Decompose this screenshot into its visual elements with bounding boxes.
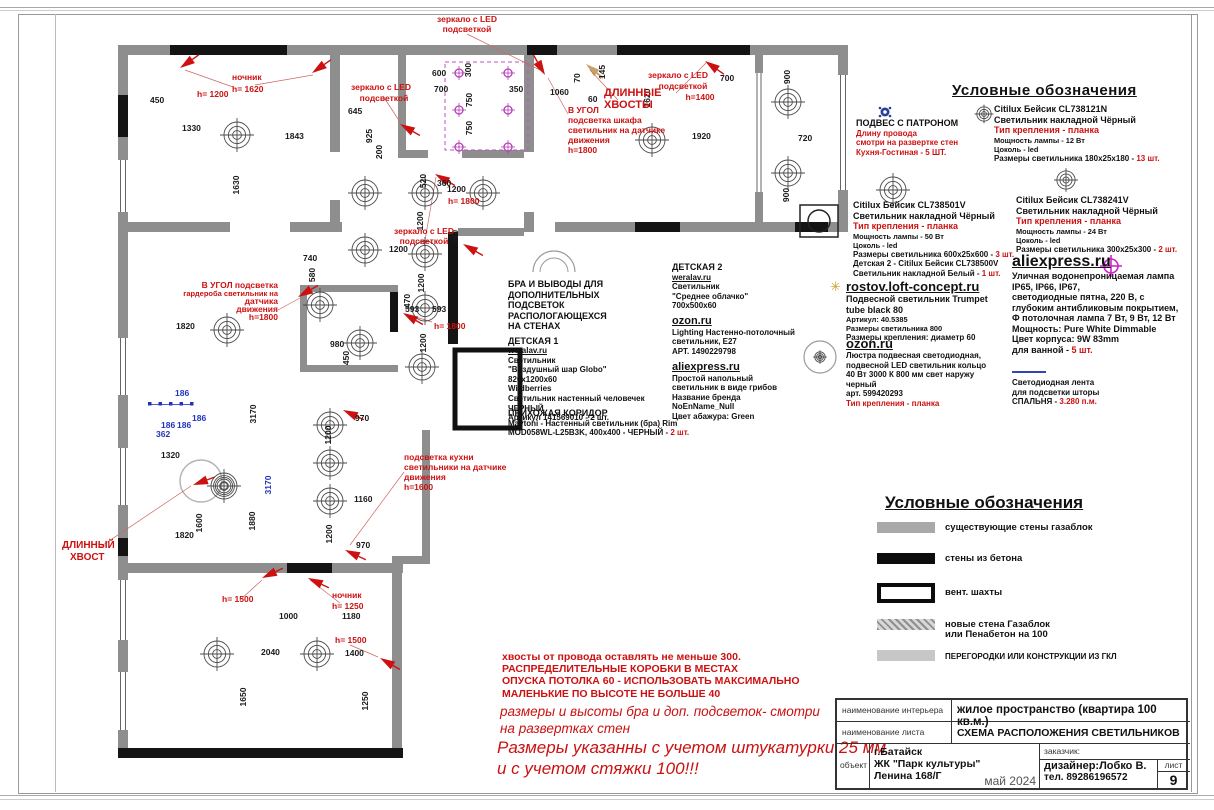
text-line: Длину провода <box>856 129 958 139</box>
text-line: Простой напольный <box>672 374 795 384</box>
svg-text:350: 350 <box>509 84 523 94</box>
wall-legend-row: новые стена Газаблок или Пенабетон на 10… <box>877 619 1177 641</box>
svg-text:зеркало с LED: зеркало с LED <box>648 70 708 80</box>
podves-entry: ПОДВЕС С ПАТРОНОМ Длину проводасмотри на… <box>856 118 958 157</box>
text-line: Цоколь - led <box>853 241 1014 250</box>
text-line: aliexpress.ru <box>672 361 795 374</box>
svg-text:ХВОСТ: ХВОСТ <box>70 552 105 563</box>
wall-legend-label: ПЕРЕГОРОДКИ ИЛИ КОНСТРУКЦИИ ИЗ ГКЛ <box>945 652 1117 661</box>
text-line: Lighting Настенно-потолочный <box>672 328 795 338</box>
text-line: weralav.ru <box>508 346 645 356</box>
svg-text:2040: 2040 <box>261 647 280 657</box>
designer-phone: тел. 89286196572 <box>1044 772 1157 783</box>
svg-text:645: 645 <box>348 106 362 116</box>
text-line: хвосты от провода оставлять не меньше 30… <box>502 651 800 663</box>
text-line: СПАЛЬНЯ - 3.280 п.м. <box>1012 397 1099 407</box>
text-line: ozon.ru <box>672 315 795 328</box>
text-line: Мощность: Pure White Dimmable <box>1012 324 1178 335</box>
swatch-new-gasblock <box>877 619 935 630</box>
text-line: глубоким антибликовым покрытием, <box>1012 303 1178 314</box>
text-line: Maytoni - Настенный светильник (бра) Rim <box>508 419 689 429</box>
svg-text:186: 186 <box>192 413 206 423</box>
washing-machine <box>800 205 838 237</box>
svg-text:1200: 1200 <box>418 333 428 352</box>
svg-text:1650: 1650 <box>238 687 248 706</box>
rostov-title: rostov.loft-concept.ru <box>846 279 988 294</box>
text-line: для подсветки шторы <box>1012 388 1099 398</box>
title-block-label: наименование интерьера <box>837 700 952 722</box>
text-line: Мощность лампы - 24 Вт <box>1016 227 1177 236</box>
text-line: Тип крепления - планка <box>853 221 1014 232</box>
swatch-existing-gasblock <box>877 522 935 533</box>
interior-name: жилое пространство (квартира 100 кв.м.) <box>952 700 1190 722</box>
text-line: IP65, IP66, IP67, <box>1012 282 1178 293</box>
pendant-socket-icon <box>879 107 892 118</box>
text-line: Подвесной светильник Trumpet <box>846 294 988 305</box>
svg-text:h=1800: h=1800 <box>568 145 597 155</box>
svg-text:h= 1200: h= 1200 <box>197 89 229 99</box>
svg-text:186: 186 <box>175 388 189 398</box>
text-line: Размеры светильника 800 <box>846 324 988 333</box>
text-line: 40 Вт 3000 К 800 мм свет наружу <box>846 370 986 380</box>
aliexpress-title: aliexpress.ru <box>1012 253 1178 271</box>
svg-text:200: 200 <box>374 145 384 159</box>
svg-text:h= 1500: h= 1500 <box>335 635 367 645</box>
wall-legend-row: существующие стены газаблок <box>877 522 1177 536</box>
svg-text:зеркало с LED: зеркало с LED <box>394 226 454 236</box>
svg-text:h=1600: h=1600 <box>404 482 433 492</box>
sheet-name: СХЕМА РАСПОЛОЖЕНИЯ СВЕТИЛЬНИКОВ <box>952 722 1190 744</box>
svg-text:362: 362 <box>156 429 170 439</box>
fixture-legend-title: Условные обозначения <box>952 82 1137 99</box>
svg-text:1880: 1880 <box>247 511 257 530</box>
svg-text:В УГОЛ: В УГОЛ <box>568 105 599 115</box>
aliexpress-block: aliexpress.ru Уличная водонепроницаемая … <box>1012 253 1178 355</box>
text-line: Мощность лампы - 50 Вт <box>853 232 1014 241</box>
text-line: Артикул: 40.5385 <box>846 315 988 324</box>
svg-text:720: 720 <box>798 133 812 143</box>
text-line: светодиодные пятна, 220 В, с <box>1012 292 1178 303</box>
text-line: Wildberries <box>508 384 645 394</box>
title-block-label: наименование листа <box>837 722 952 744</box>
svg-text:1400: 1400 <box>345 648 364 658</box>
handwritten-note-2: Размеры указанны с учетом штукатурки 25 … <box>497 737 886 779</box>
title-block: наименование интерьера жилое пространств… <box>835 698 1188 790</box>
svg-text:1250: 1250 <box>360 691 370 710</box>
wall-legend-row: вент. шахты <box>877 583 1177 605</box>
ozon-title: ozon.ru <box>846 336 986 351</box>
text-line: смотри на развертке стен <box>856 138 958 148</box>
svg-text:ночник: ночник <box>232 72 262 82</box>
object-city: г.Батайск <box>874 746 1039 758</box>
text-line: ДЕТСКАЯ 2 <box>672 262 795 273</box>
text-line: Тип крепления - планка <box>994 125 1160 136</box>
client-label: заказчик: <box>1040 744 1190 760</box>
svg-text:h=1800: h=1800 <box>249 312 278 322</box>
text-line: НА СТЕНАХ <box>508 321 645 332</box>
svg-text:1200: 1200 <box>324 524 334 543</box>
sheet-number: 9 <box>1157 772 1190 788</box>
text-line: ОПУСКА ПОТОЛКА 60 - ИСПОЛЬЗОВАТЬ МАКСИМА… <box>502 675 800 687</box>
date: май 2024 <box>984 775 1036 787</box>
text-line: Светильник накладной Чёрный <box>1016 206 1177 217</box>
text-line: размеры и высоты бра и доп. подсветок- с… <box>500 703 820 720</box>
svg-text:186: 186 <box>177 420 191 430</box>
text-line: на развертках стен <box>500 720 820 737</box>
svg-text:1630: 1630 <box>231 175 241 194</box>
svg-text:подсветкой: подсветкой <box>400 236 449 246</box>
text-line: Тип крепления - планка <box>1016 216 1177 227</box>
text-line: Кухня-Гостиная - 5 ШТ. <box>856 148 958 158</box>
svg-text:3170: 3170 <box>263 475 273 494</box>
prihozhaya-block: ПРИХОЖАЯ КОРИДОРMaytoni - Настенный свет… <box>508 408 689 438</box>
svg-text:h= 1800: h= 1800 <box>434 321 466 331</box>
svg-text:1200: 1200 <box>416 273 426 292</box>
svg-text:1920: 1920 <box>692 131 711 141</box>
svg-text:750: 750 <box>464 93 474 107</box>
object-complex: ЖК "Парк культуры" <box>874 758 1039 770</box>
svg-text:60: 60 <box>588 94 598 104</box>
swatch-concrete <box>877 553 935 564</box>
svg-text:1320: 1320 <box>161 450 180 460</box>
svg-text:ХВОСТЫ: ХВОСТЫ <box>604 99 653 111</box>
svg-text:450: 450 <box>341 351 351 365</box>
rostov-block: rostov.loft-concept.ru Подвесной светиль… <box>846 279 988 343</box>
spot-lights <box>452 66 515 154</box>
text-line: и с учетом стяжки 100!!! <box>497 758 886 779</box>
text-line: NoEnName_Null <box>672 402 795 412</box>
wall-legend-label: существующие стены газаблок <box>945 522 1093 533</box>
junction-dots <box>148 402 194 406</box>
svg-text:1330: 1330 <box>182 123 201 133</box>
svg-text:h= 1800: h= 1800 <box>448 196 480 206</box>
svg-text:h= 1620: h= 1620 <box>232 84 264 94</box>
svg-text:1820: 1820 <box>175 530 194 540</box>
svg-text:зеркало с LED: зеркало с LED <box>437 14 497 24</box>
text-line: Цвет корпуса: 9W 83mm <box>1012 334 1178 345</box>
svg-text:700: 700 <box>720 73 734 83</box>
svg-text:450: 450 <box>150 95 164 105</box>
text-line: Мощность лампы - 12 Вт <box>994 136 1160 145</box>
object-address: г.Батайск ЖК "Парк культуры" Ленина 168/… <box>870 744 1040 788</box>
svg-text:h=1400: h=1400 <box>685 92 714 102</box>
text-line: Светильник накладной Чёрный <box>994 115 1160 126</box>
cl738501v-entry: Citilux Бейсик CL738501VСветильник накла… <box>853 200 1014 278</box>
wall-legend-label: стены из бетона <box>945 553 1022 564</box>
text-line: Цоколь - led <box>994 145 1160 154</box>
text-line: Citilux Бейсик CL738501V <box>853 200 1014 211</box>
svg-text:593: 593 <box>432 304 446 314</box>
svg-text:593: 593 <box>405 304 419 314</box>
svg-text:925: 925 <box>364 129 374 143</box>
text-line: РАСПОЛОГАЮЩЕХСЯ <box>508 311 645 322</box>
svg-text:1060: 1060 <box>550 87 569 97</box>
svg-text:движения: движения <box>404 472 446 482</box>
cl738121n-entry: Citilux Бейсик CL738121NСветильник накла… <box>994 104 1160 163</box>
text-line: ПРИХОЖАЯ КОРИДОР <box>508 408 689 419</box>
swatch-vent-shaft <box>877 583 935 603</box>
svg-text:970: 970 <box>355 413 369 423</box>
text-line: Цвет абажура: Green <box>672 412 795 422</box>
svg-text:750: 750 <box>464 121 474 135</box>
text-line: арт. 599420293 <box>846 389 986 399</box>
svg-text:740: 740 <box>303 253 317 263</box>
svg-text:700: 700 <box>434 84 448 94</box>
text-line: Уличная водонепроницаемая лампа <box>1012 271 1178 282</box>
text-line: Citilux Бейсик CL738121N <box>994 104 1160 115</box>
text-line: ДОПОЛНИТЕЛЬНЫХ <box>508 290 645 301</box>
swatch-gkl-partition <box>877 650 935 661</box>
text-line: weralav.ru <box>672 273 795 283</box>
svg-text:подсветкой: подсветкой <box>360 93 409 103</box>
text-line: Светильник <box>508 356 645 366</box>
text-line: Размеры светильника 180x25x180 - 13 шт. <box>994 154 1160 164</box>
svg-text:подсветкой: подсветкой <box>443 24 492 34</box>
pendant-gold-icon: ✳ <box>830 279 841 294</box>
text-line: Светильник настенный человечек <box>508 394 645 404</box>
text-line: РАСПРЕДЕЛИТЕЛЬНЫЕ КОРОБКИ В МЕСТАХ <box>502 663 800 675</box>
svg-text:520: 520 <box>418 174 428 188</box>
svg-text:1000: 1000 <box>279 611 298 621</box>
svg-text:ДЛИННЫЙ: ДЛИННЫЙ <box>62 538 115 551</box>
svg-text:светильник на датчике: светильник на датчике <box>568 125 665 135</box>
sconce-arc-icon <box>533 251 575 272</box>
wall-legend-label: или Пенабетон на 100 <box>945 629 1048 640</box>
led-strip-icon <box>1012 371 1046 373</box>
svg-text:1200: 1200 <box>323 425 333 444</box>
text-line: черный <box>846 380 986 390</box>
handwritten-note-1: размеры и высоты бра и доп. подсветок- с… <box>500 703 820 737</box>
svg-text:h= 1250: h= 1250 <box>332 601 364 611</box>
drawing-sheet: ✳ 450133018431630645925200600300700 <box>0 0 1214 810</box>
svg-text:подсветка шкафа: подсветка шкафа <box>568 115 642 125</box>
cl738241v-entry: Citilux Бейсик CL738241VСветильник накла… <box>1016 195 1177 254</box>
svg-text:70: 70 <box>572 73 582 83</box>
svg-text:h= 1500: h= 1500 <box>222 594 254 604</box>
text-line: светильник в виде грибов <box>672 383 795 393</box>
text-line: светильник, E27 <box>672 337 795 347</box>
svg-text:580: 580 <box>307 268 317 282</box>
text-line: Тип крепления - планка <box>846 399 986 409</box>
sconce-arc-icon <box>540 258 568 272</box>
text-line: ПОДСВЕТОК <box>508 300 645 311</box>
svg-text:подсветкой: подсветкой <box>659 81 708 91</box>
text-line: 700x500x60 <box>672 301 795 311</box>
svg-text:3170: 3170 <box>248 404 258 423</box>
detskaya2-block: ДЕТСКАЯ 2weralav.ruСветильник"Среднее об… <box>672 262 795 422</box>
text-line: АРТ. 1490229798 <box>672 347 795 357</box>
sheet-number-label: лист <box>1157 760 1190 772</box>
svg-text:зеркало с LED: зеркало с LED <box>351 82 411 92</box>
svg-text:1200: 1200 <box>447 184 466 194</box>
svg-text:ночник: ночник <box>332 590 362 600</box>
text-line: Детская 2 - Citilux Бейсик CL738500V <box>853 259 1014 269</box>
text-line: 820x1200x60 <box>508 375 645 385</box>
wall-legend-title: Условные обозначения <box>885 493 1083 513</box>
text-line: Светильник <box>672 282 795 292</box>
client-designer-cell: заказчик: дизайнер:Лобко В. тел. 8928619… <box>1040 744 1190 788</box>
svg-text:1600: 1600 <box>194 513 204 532</box>
text-line: МАЛЕНЬКИЕ ПО ВЫСОТЕ НЕ БОЛЬШЕ 40 <box>502 688 800 700</box>
text-line: Размеры указанны с учетом штукатурки 25 … <box>497 737 886 758</box>
svg-text:900: 900 <box>781 188 791 202</box>
wall-legend-row: ПЕРЕГОРОДКИ ИЛИ КОНСТРУКЦИИ ИЗ ГКЛ <box>877 650 1187 664</box>
wall-legend-row: стены из бетона <box>877 553 1177 567</box>
text-line: Ф потолочная лампа 7 Вт, 9 Вт, 12 Вт <box>1012 313 1178 324</box>
text-line: БРА И ВЫВОДЫ ДЛЯ <box>508 279 645 290</box>
text-line: для ванной - 5 шт. <box>1012 345 1178 356</box>
text-line: Светильник накладной Белый - 1 шт. <box>853 269 1014 279</box>
svg-text:300: 300 <box>463 63 473 77</box>
svg-text:145: 145 <box>597 65 607 79</box>
svg-text:970: 970 <box>356 540 370 550</box>
bra-notes-block: БРА И ВЫВОДЫ ДЛЯДОПОЛНИТЕЛЬНЫХПОДСВЕТОКР… <box>508 279 645 423</box>
text-line: Размеры светильника 600x25x600 - 3 шт. <box>853 250 1014 260</box>
text-line: tube black 80 <box>846 305 988 316</box>
svg-text:980: 980 <box>330 339 344 349</box>
svg-text:1180: 1180 <box>342 611 361 621</box>
title-block-label: объект <box>837 744 870 788</box>
text-line: подвесной LED светильник кольцо <box>846 361 986 371</box>
wall-legend-label: вент. шахты <box>945 587 1002 598</box>
text-line: ДЕТСКАЯ 1 <box>508 336 645 347</box>
text-line: Citilux Бейсик CL738241V <box>1016 195 1177 206</box>
svg-text:1820: 1820 <box>176 321 195 331</box>
ozon-block: ozon.ru Люстра подвесная светодиодная,по… <box>846 336 986 409</box>
svg-text:1160: 1160 <box>354 494 373 504</box>
svg-text:1843: 1843 <box>285 131 304 141</box>
podves-name: ПОДВЕС С ПАТРОНОМ <box>856 118 958 129</box>
warning-note: хвосты от провода оставлять не меньше 30… <box>502 651 800 700</box>
svg-text:ДЛИННЫЕ: ДЛИННЫЕ <box>604 87 661 99</box>
text-line: Название бренда <box>672 393 795 403</box>
text-line: Светодиодная лента <box>1012 378 1099 388</box>
text-line: Люстра подвесная светодиодная, <box>846 351 986 361</box>
led-strip-note: Светодиодная лентадля подсветки шторыСПА… <box>1012 378 1099 407</box>
text-line: Цоколь - led <box>1016 236 1177 245</box>
designer: дизайнер:Лобко В. <box>1044 760 1157 772</box>
svg-text:светильники на датчике: светильники на датчике <box>404 462 507 472</box>
svg-text:900: 900 <box>782 70 792 84</box>
text-line: "Воздушный шар Globo" <box>508 365 645 375</box>
text-line: Светильник накладной Чёрный <box>853 211 1014 222</box>
svg-text:движения: движения <box>568 135 610 145</box>
svg-text:подсветка кухни: подсветка кухни <box>404 452 474 462</box>
text-line: "Среднее облачко" <box>672 292 795 302</box>
svg-text:600: 600 <box>432 68 446 78</box>
text-line: MOD058WL-L25B3K, 400x400 - ЧЕРНЫЙ - 2 шт… <box>508 428 689 438</box>
